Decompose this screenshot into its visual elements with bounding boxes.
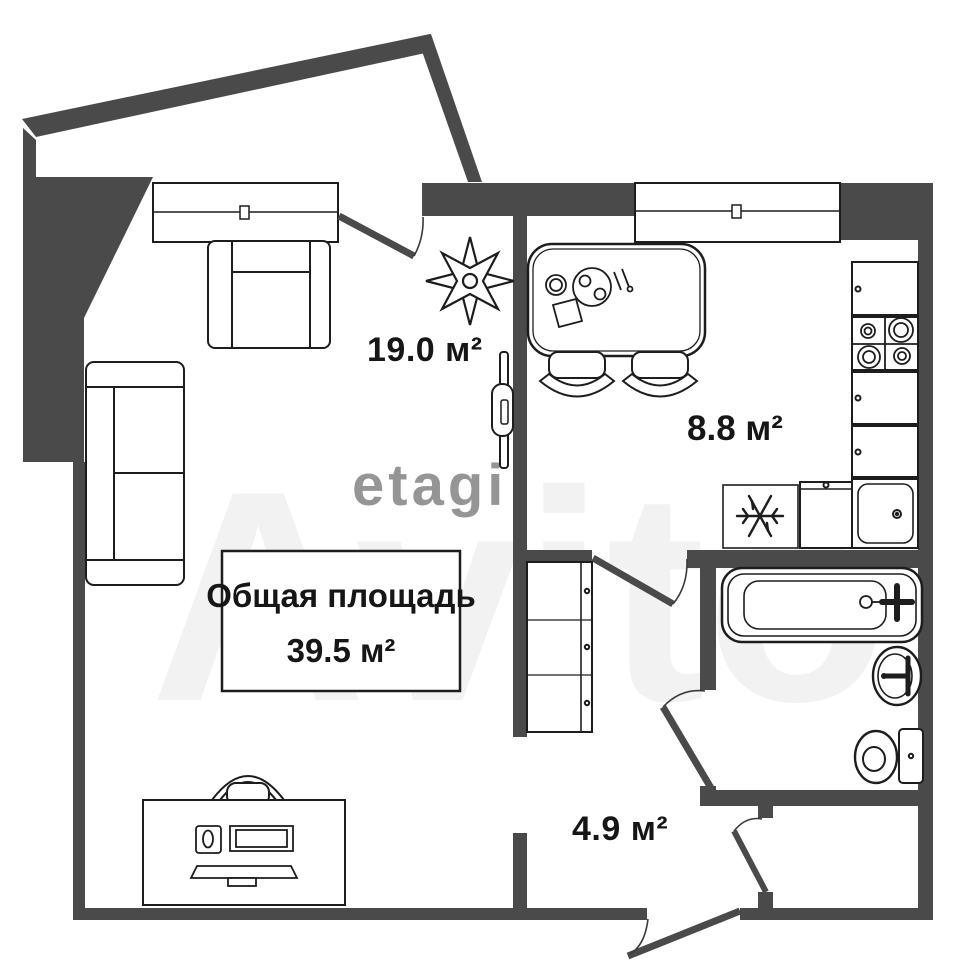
bathroom-sink-icon xyxy=(873,647,921,705)
kitchen-sink-icon xyxy=(852,479,918,548)
total-area-title: Общая площадь xyxy=(206,577,476,614)
dining-table-icon xyxy=(528,244,705,356)
wall-divider-living-kitchen xyxy=(513,216,527,555)
washing-machine-icon xyxy=(800,482,852,548)
kitchen-area-label: 8.8 м² xyxy=(687,409,783,448)
stool-icon xyxy=(540,352,614,397)
computer-monitor-icon xyxy=(230,826,293,851)
hallway-area-label: 4.9 м² xyxy=(572,810,668,848)
wall-bottom-left xyxy=(73,908,647,920)
kitchen-window-icon xyxy=(635,183,840,242)
sofa-icon xyxy=(86,362,184,585)
wall-hallway-left-upper xyxy=(513,568,527,737)
living-room-area-label: 19.0 м² xyxy=(367,331,483,369)
bathtub-icon xyxy=(722,568,922,642)
kitchen-cabinet-icon xyxy=(852,426,918,477)
kitchen-cabinet-icon xyxy=(852,372,918,424)
plate-icon xyxy=(573,268,611,306)
stove-icon xyxy=(852,317,918,370)
wall-vestibule-stub-bottom xyxy=(758,892,773,908)
total-area-box xyxy=(222,551,460,691)
desk-icon xyxy=(143,800,345,905)
fridge-icon xyxy=(723,485,798,548)
wall-bottom-right xyxy=(740,908,933,920)
wall-left-lower xyxy=(73,462,85,920)
wall-bathroom-bottom xyxy=(700,790,933,806)
wall-kitchen-bottom-right xyxy=(687,550,933,568)
total-area-value: 39.5 м² xyxy=(287,632,396,669)
watermark-etagi: etagi xyxy=(352,453,507,518)
computer-tower-icon xyxy=(196,826,221,853)
floorplan-svg: Avito etagi xyxy=(0,0,960,960)
stool-icon xyxy=(623,352,697,397)
wall-top-middle xyxy=(422,183,635,216)
wall-bathroom-left xyxy=(700,568,716,690)
wardrobe-icon xyxy=(527,562,592,732)
floorplan-image: Avito etagi xyxy=(0,0,960,960)
wall-vestibule-stub-top xyxy=(758,806,773,818)
hallway xyxy=(527,562,592,732)
armchair-icon xyxy=(208,241,330,348)
cup-inner xyxy=(550,279,562,291)
napkin-icon xyxy=(553,299,582,327)
wall-hallway-left-lower xyxy=(513,833,527,908)
living-room-window-icon xyxy=(153,183,338,242)
kitchen-cabinet-icon xyxy=(852,262,918,315)
toilet-icon xyxy=(855,729,923,783)
